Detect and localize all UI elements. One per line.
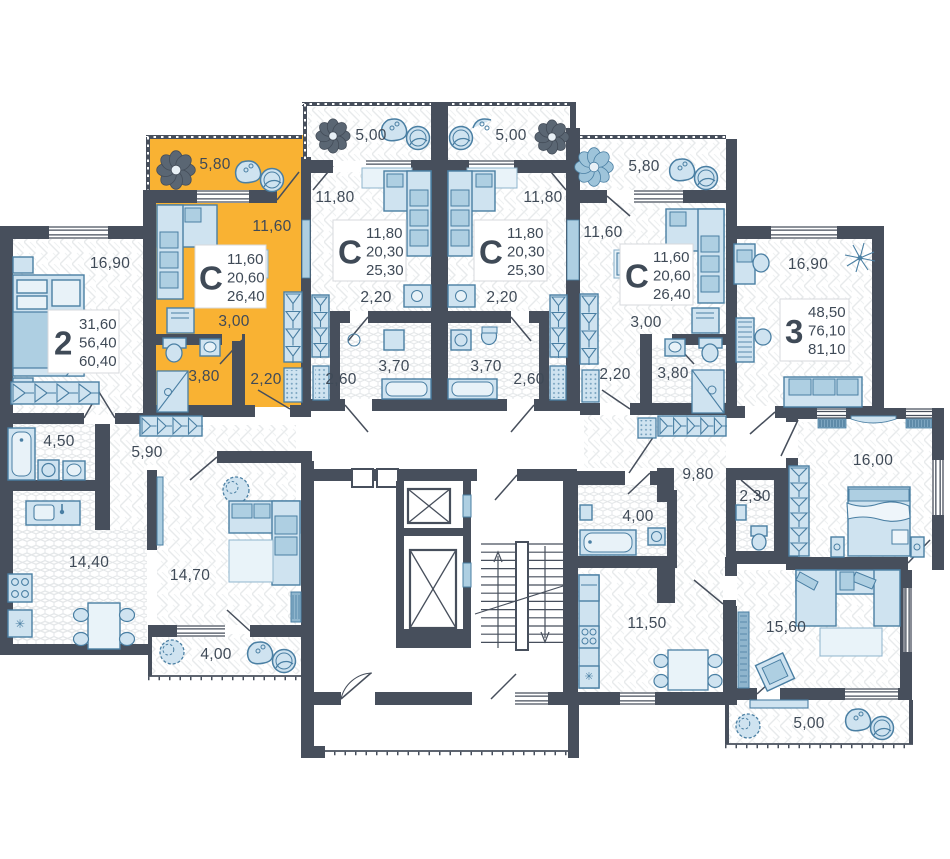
- svg-text:16,90: 16,90: [90, 255, 130, 272]
- svg-text:14,40: 14,40: [69, 554, 109, 571]
- svg-text:20,60: 20,60: [227, 270, 265, 287]
- svg-text:✳: ✳: [584, 671, 593, 683]
- svg-text:5,00: 5,00: [495, 127, 526, 144]
- svg-text:20,30: 20,30: [507, 244, 545, 261]
- svg-text:11,80: 11,80: [507, 225, 543, 242]
- svg-text:2,20: 2,20: [360, 289, 391, 306]
- svg-text:11,60: 11,60: [583, 224, 622, 241]
- svg-text:5,00: 5,00: [355, 127, 386, 144]
- svg-text:3,00: 3,00: [630, 314, 661, 331]
- svg-text:5,00: 5,00: [793, 715, 824, 732]
- svg-text:9,80: 9,80: [682, 466, 713, 483]
- svg-text:11,60: 11,60: [252, 218, 291, 235]
- svg-text:4,50: 4,50: [43, 433, 74, 450]
- svg-text:C: C: [338, 234, 362, 271]
- svg-text:81,10: 81,10: [808, 341, 846, 358]
- svg-text:2,20: 2,20: [250, 371, 281, 388]
- svg-text:C: C: [625, 258, 649, 295]
- svg-text:2,20: 2,20: [599, 366, 630, 383]
- svg-text:2,60: 2,60: [325, 371, 356, 388]
- svg-text:56,40: 56,40: [79, 335, 117, 352]
- svg-text:20,30: 20,30: [366, 244, 404, 261]
- svg-text:48,50: 48,50: [808, 304, 846, 321]
- svg-text:5,80: 5,80: [628, 158, 659, 175]
- svg-text:60,40: 60,40: [79, 353, 117, 370]
- svg-text:14,70: 14,70: [170, 567, 210, 584]
- svg-text:11,80: 11,80: [366, 225, 402, 242]
- svg-text:20,60: 20,60: [653, 268, 691, 285]
- svg-text:11,80: 11,80: [315, 189, 354, 206]
- svg-text:31,60: 31,60: [79, 316, 117, 333]
- svg-text:C: C: [479, 234, 503, 271]
- svg-text:C: C: [199, 260, 223, 297]
- svg-text:5,90: 5,90: [131, 444, 162, 461]
- svg-text:3,00: 3,00: [218, 313, 249, 330]
- svg-text:3,70: 3,70: [378, 358, 409, 375]
- svg-text:25,30: 25,30: [507, 262, 545, 279]
- svg-text:16,90: 16,90: [788, 256, 828, 273]
- svg-text:2,60: 2,60: [513, 371, 544, 388]
- svg-text:3,80: 3,80: [657, 365, 688, 382]
- svg-text:15,60: 15,60: [766, 619, 806, 636]
- svg-text:2,20: 2,20: [486, 289, 517, 306]
- svg-text:3: 3: [785, 313, 803, 350]
- svg-text:11,80: 11,80: [523, 189, 562, 206]
- svg-text:2: 2: [54, 325, 72, 362]
- svg-text:11,50: 11,50: [627, 615, 666, 632]
- svg-text:25,30: 25,30: [366, 262, 404, 279]
- svg-text:2,30: 2,30: [739, 488, 770, 505]
- svg-text:5,80: 5,80: [199, 156, 230, 173]
- svg-text:3,70: 3,70: [470, 358, 501, 375]
- svg-text:4,00: 4,00: [200, 646, 231, 663]
- svg-text:3,80: 3,80: [188, 368, 219, 385]
- svg-text:26,40: 26,40: [653, 286, 691, 303]
- svg-text:26,40: 26,40: [227, 288, 265, 305]
- svg-text:11,60: 11,60: [653, 249, 689, 266]
- svg-text:76,10: 76,10: [808, 323, 846, 340]
- svg-text:11,60: 11,60: [227, 251, 263, 268]
- svg-text:4,00: 4,00: [622, 508, 653, 525]
- svg-text:16,00: 16,00: [853, 452, 893, 469]
- svg-text:✳: ✳: [15, 617, 25, 631]
